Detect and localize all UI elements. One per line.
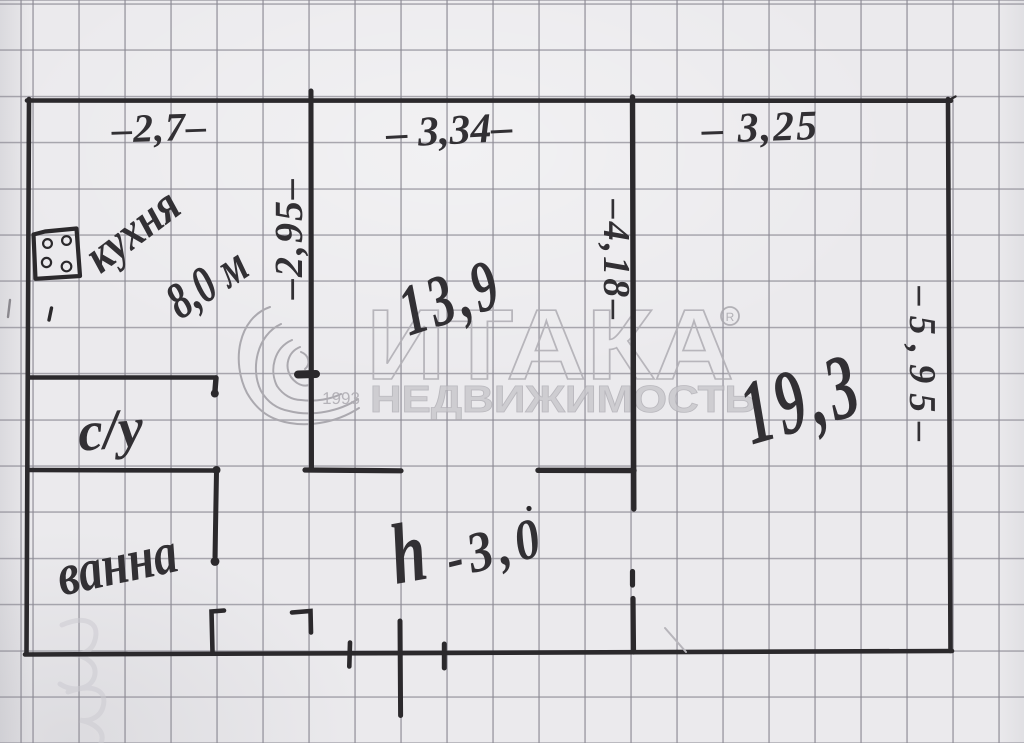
svg-text:h: h: [383, 502, 434, 603]
svg-text:– 3,34–: – 3,34–: [384, 105, 513, 158]
svg-text:кухня: кухня: [75, 177, 191, 283]
svg-text:– 3,25: – 3,25: [700, 103, 820, 153]
svg-text:с/у: с/у: [75, 396, 147, 464]
svg-text:–5,95–: –5,95–: [901, 286, 943, 452]
svg-text:19,3: 19,3: [729, 332, 874, 464]
svg-text:-3,0: -3,0: [439, 506, 552, 591]
svg-text:13,9: 13,9: [389, 242, 512, 351]
svg-text:8,0 м: 8,0 м: [155, 235, 258, 329]
svg-text:–2,95–: –2,95–: [266, 177, 311, 300]
svg-text:–4,18–: –4,18–: [595, 199, 637, 323]
svg-text:ванна: ванна: [51, 519, 183, 609]
svg-text:–2,7–: –2,7–: [110, 103, 208, 151]
